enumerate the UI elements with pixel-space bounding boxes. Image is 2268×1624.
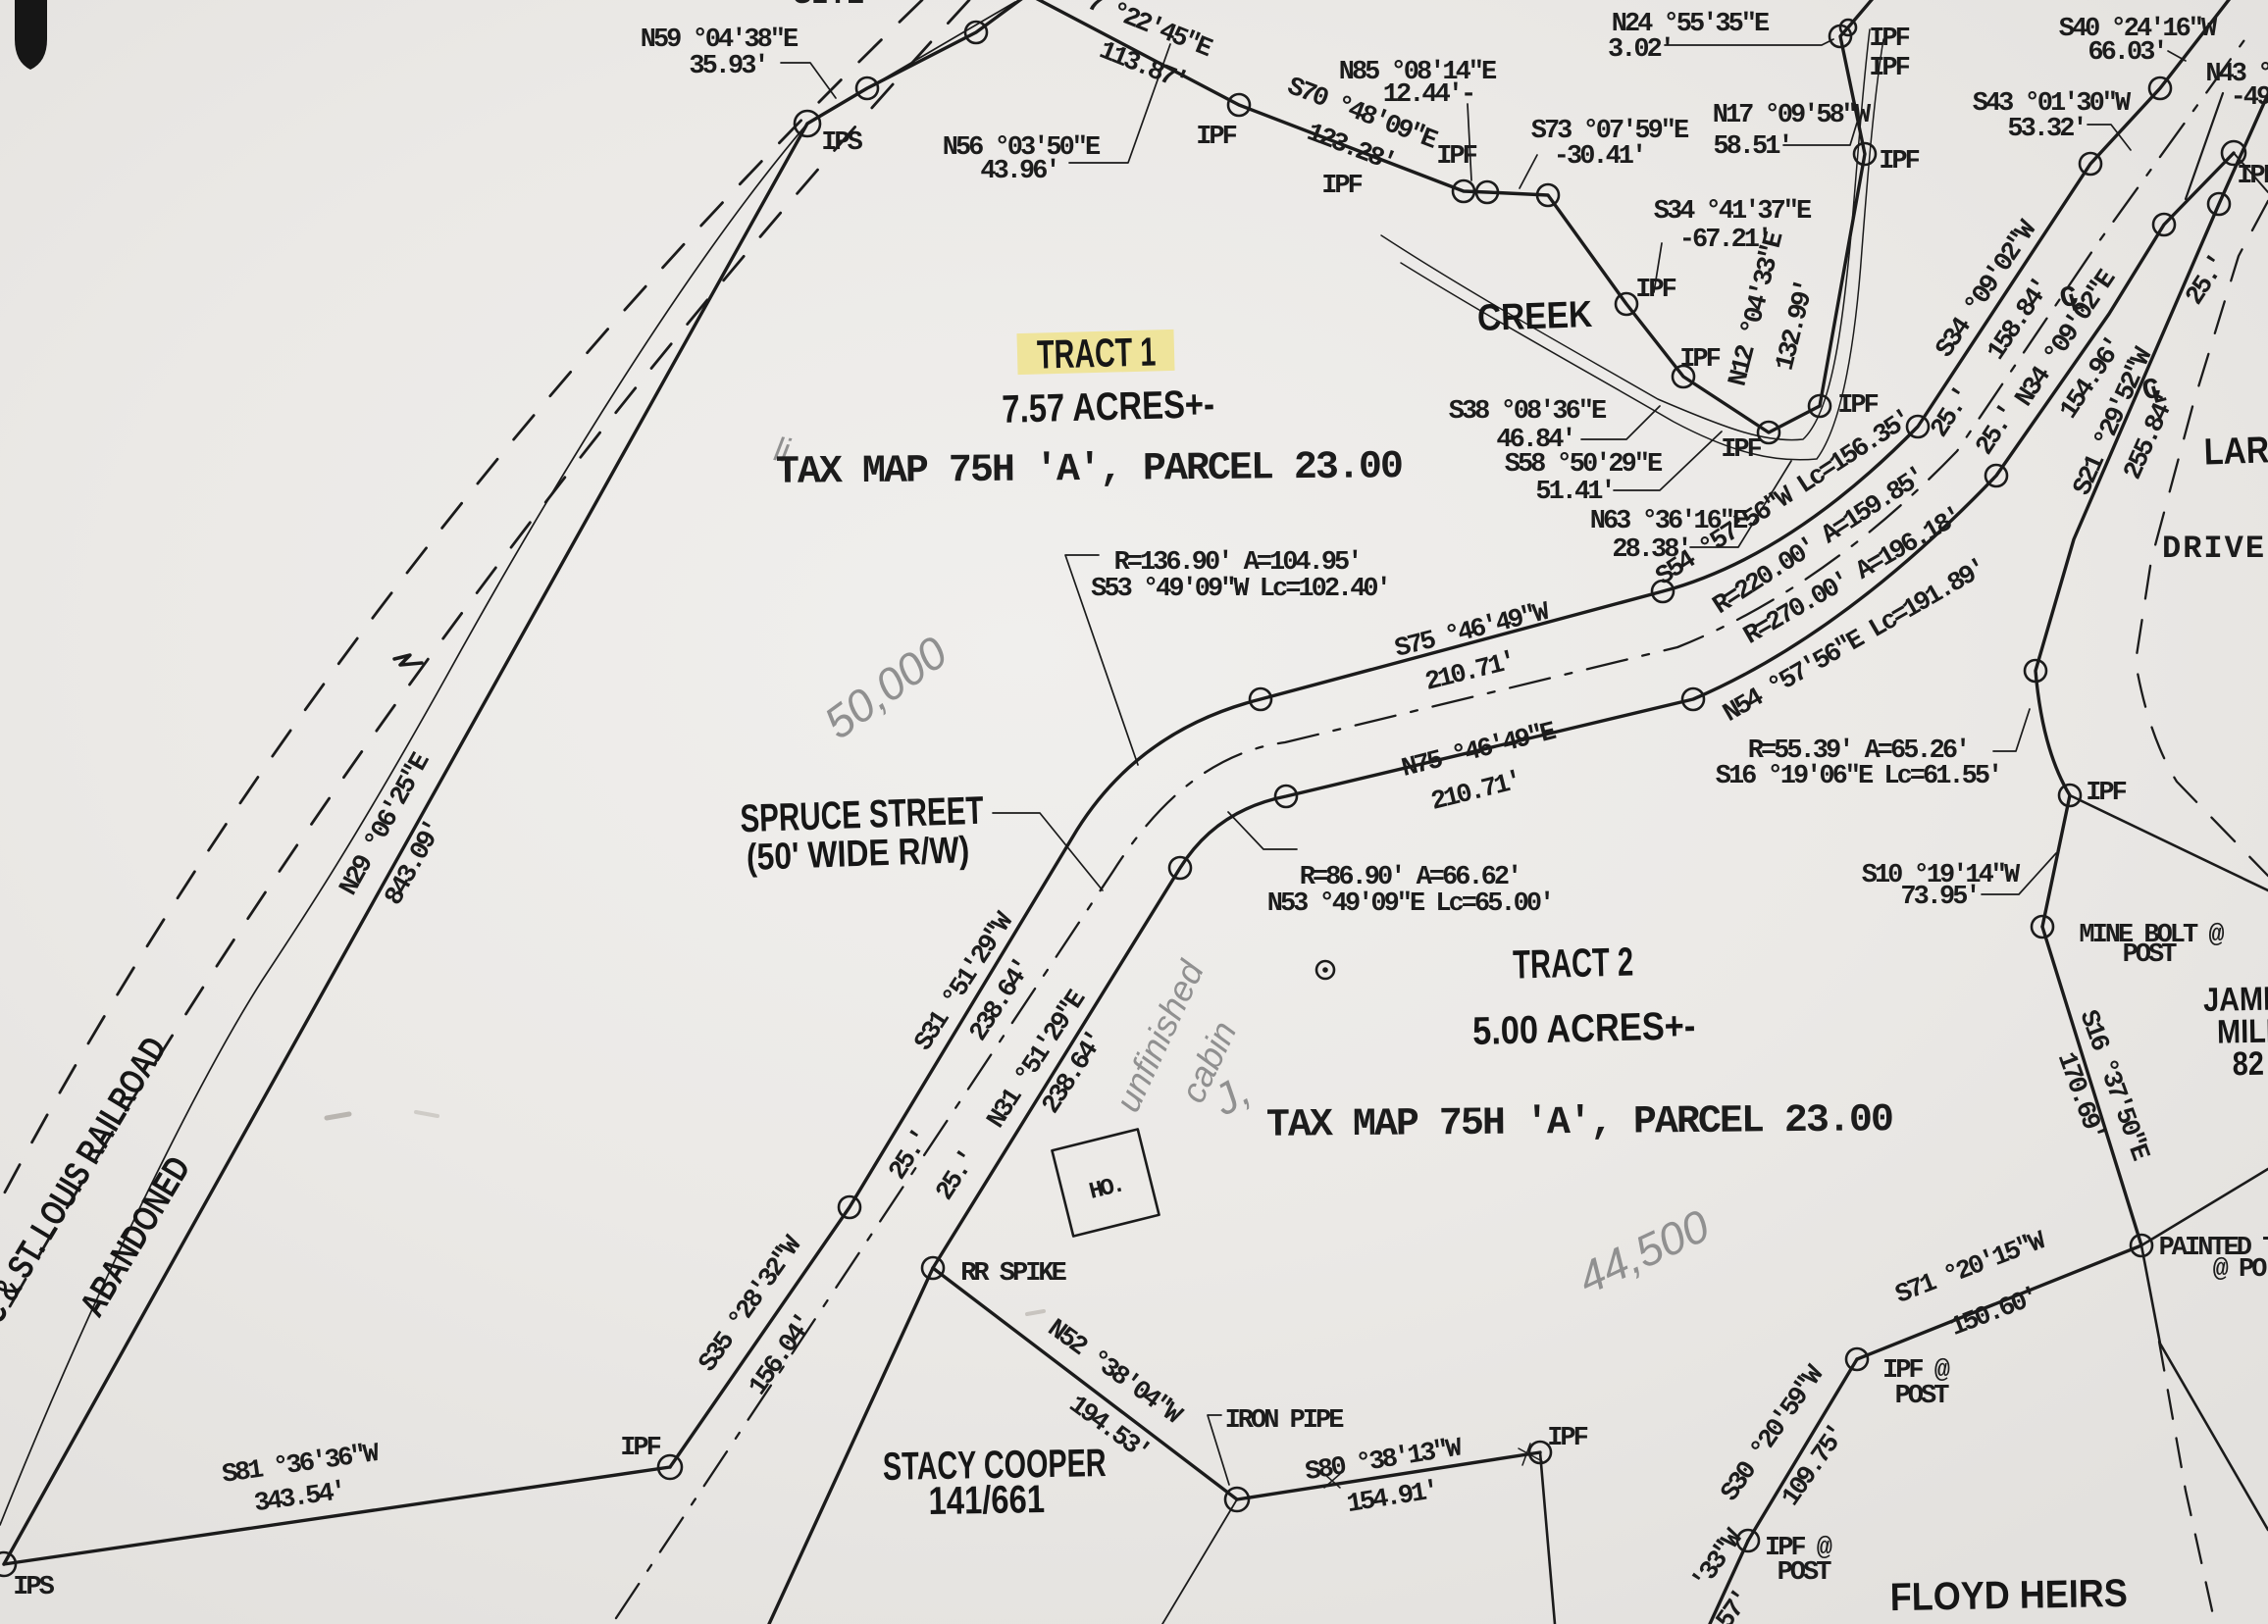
svg-text:25.': 25.': [1971, 401, 2024, 461]
svg-text:POST: POST: [1895, 1382, 1950, 1411]
svg-text:CREEK: CREEK: [1476, 293, 1593, 339]
svg-text:N75 °46'49"E: N75 °46'49"E: [1399, 718, 1560, 785]
svg-text:IPF: IPF: [1869, 54, 1909, 83]
svg-text:SITE: SITE: [794, 0, 864, 13]
svg-text:-49.: -49.: [2231, 83, 2268, 113]
svg-text:S34 °41'37"E: S34 °41'37"E: [1654, 197, 1812, 227]
svg-text:150.60': 150.60': [1946, 1284, 2041, 1344]
svg-text:IPF: IPF: [1869, 25, 1909, 54]
svg-text:25.': 25.': [1926, 383, 1979, 443]
svg-text:50,000: 50,000: [814, 626, 956, 748]
svg-text:S58 °50'29"E: S58 °50'29"E: [1505, 450, 1663, 480]
svg-text:44,500: 44,500: [1570, 1199, 1717, 1304]
svg-text:TAX MAP 75H 'A', PARCEL 23.00: TAX MAP 75H 'A', PARCEL 23.00: [776, 445, 1402, 495]
svg-text:IPF: IPF: [1196, 123, 1236, 152]
svg-text:S38 °08'36"E: S38 °08'36"E: [1449, 397, 1607, 427]
svg-text:S75 °46'49"W: S75 °46'49"W: [1392, 598, 1554, 665]
svg-text:S16 °19'06"E Lc=61.55': S16 °19'06"E Lc=61.55': [1716, 762, 2000, 791]
svg-text:IPS: IPS: [821, 128, 862, 158]
svg-text:12.44'-: 12.44'-: [1383, 80, 1473, 110]
svg-text:3.02': 3.02': [1608, 35, 1673, 65]
svg-text:N53 °49'09"E Lc=65.00': N53 °49'09"E Lc=65.00': [1267, 889, 1552, 919]
svg-text:132.99': 132.99': [1771, 279, 1821, 374]
svg-text:IPS: IPS: [13, 1573, 54, 1602]
svg-text:N17 °09'58"W: N17 °09'58"W: [1713, 101, 1872, 130]
svg-text:66.03': 66.03': [2088, 38, 2165, 68]
svg-text:82: 82: [2232, 1043, 2264, 1082]
svg-text:IPF: IPF: [2237, 162, 2268, 191]
svg-text:-30.41': -30.41': [1554, 142, 1644, 172]
svg-text:HO.: HO.: [1087, 1172, 1126, 1205]
svg-text:IPF: IPF: [1547, 1424, 1587, 1453]
svg-text:IPF: IPF: [620, 1434, 660, 1463]
svg-text:7.57 ACRES+-: 7.57 ACRES+-: [1002, 381, 1215, 431]
svg-text:43.96': 43.96': [980, 157, 1057, 186]
svg-text:@ PO: @ PO: [2213, 1255, 2268, 1285]
svg-text:IPF: IPF: [1679, 345, 1720, 375]
svg-text:(50' WIDE R/W): (50' WIDE R/W): [746, 829, 970, 878]
svg-text:TRACT 1: TRACT 1: [1037, 330, 1157, 378]
svg-text:IRON PIPE: IRON PIPE: [1225, 1406, 1345, 1436]
svg-text:POST: POST: [1778, 1558, 1832, 1588]
svg-text:51.41': 51.41': [1535, 478, 1613, 507]
svg-text:LARK: LARK: [2203, 429, 2268, 473]
svg-text:IPF: IPF: [1635, 276, 1675, 305]
svg-text:POST: POST: [2123, 940, 2178, 970]
svg-text:'33"W: '33"W: [1687, 1524, 1751, 1597]
svg-text:IPF: IPF: [1721, 435, 1761, 465]
svg-text:35.93': 35.93': [689, 52, 766, 81]
svg-text:141/661: 141/661: [928, 1477, 1045, 1523]
svg-text:IPF: IPF: [1321, 172, 1362, 201]
svg-text:25.': 25.': [2181, 251, 2234, 311]
svg-text:58.51': 58.51': [1713, 132, 1790, 162]
svg-text:154.91': 154.91': [1345, 1477, 1439, 1520]
svg-text:R=136.90' A=104.95': R=136.90' A=104.95': [1114, 548, 1361, 578]
svg-text:S53 °49'09"W Lc=102.40': S53 °49'09"W Lc=102.40': [1091, 575, 1389, 604]
svg-text:IPF: IPF: [1837, 391, 1878, 421]
svg-text:TAX MAP 75H 'A', PARCEL 23.00: TAX MAP 75H 'A', PARCEL 23.00: [1266, 1098, 1892, 1148]
svg-text:DRIVE: DRIVE: [2162, 531, 2266, 567]
svg-text:FLOYD HEIRS: FLOYD HEIRS: [1889, 1572, 2128, 1619]
svg-text:TRACT 2: TRACT 2: [1513, 939, 1634, 988]
svg-text:5.00 ACRES+-: 5.00 ACRES+-: [1472, 1003, 1696, 1053]
svg-text:R=86.90' A=66.62': R=86.90' A=66.62': [1300, 863, 1520, 892]
svg-text:IPF: IPF: [1436, 142, 1476, 172]
svg-text:RR SPIKE: RR SPIKE: [960, 1259, 1066, 1289]
svg-text:73.95': 73.95': [1900, 883, 1978, 912]
svg-text:53.32': 53.32': [2007, 115, 2085, 144]
svg-text:IPF: IPF: [2086, 779, 2126, 808]
svg-text:N59 °04'38"E: N59 °04'38"E: [641, 25, 799, 55]
svg-text:IPF: IPF: [1879, 147, 1919, 177]
svg-text:S80 °38'13"W: S80 °38'13"W: [1303, 1434, 1465, 1488]
